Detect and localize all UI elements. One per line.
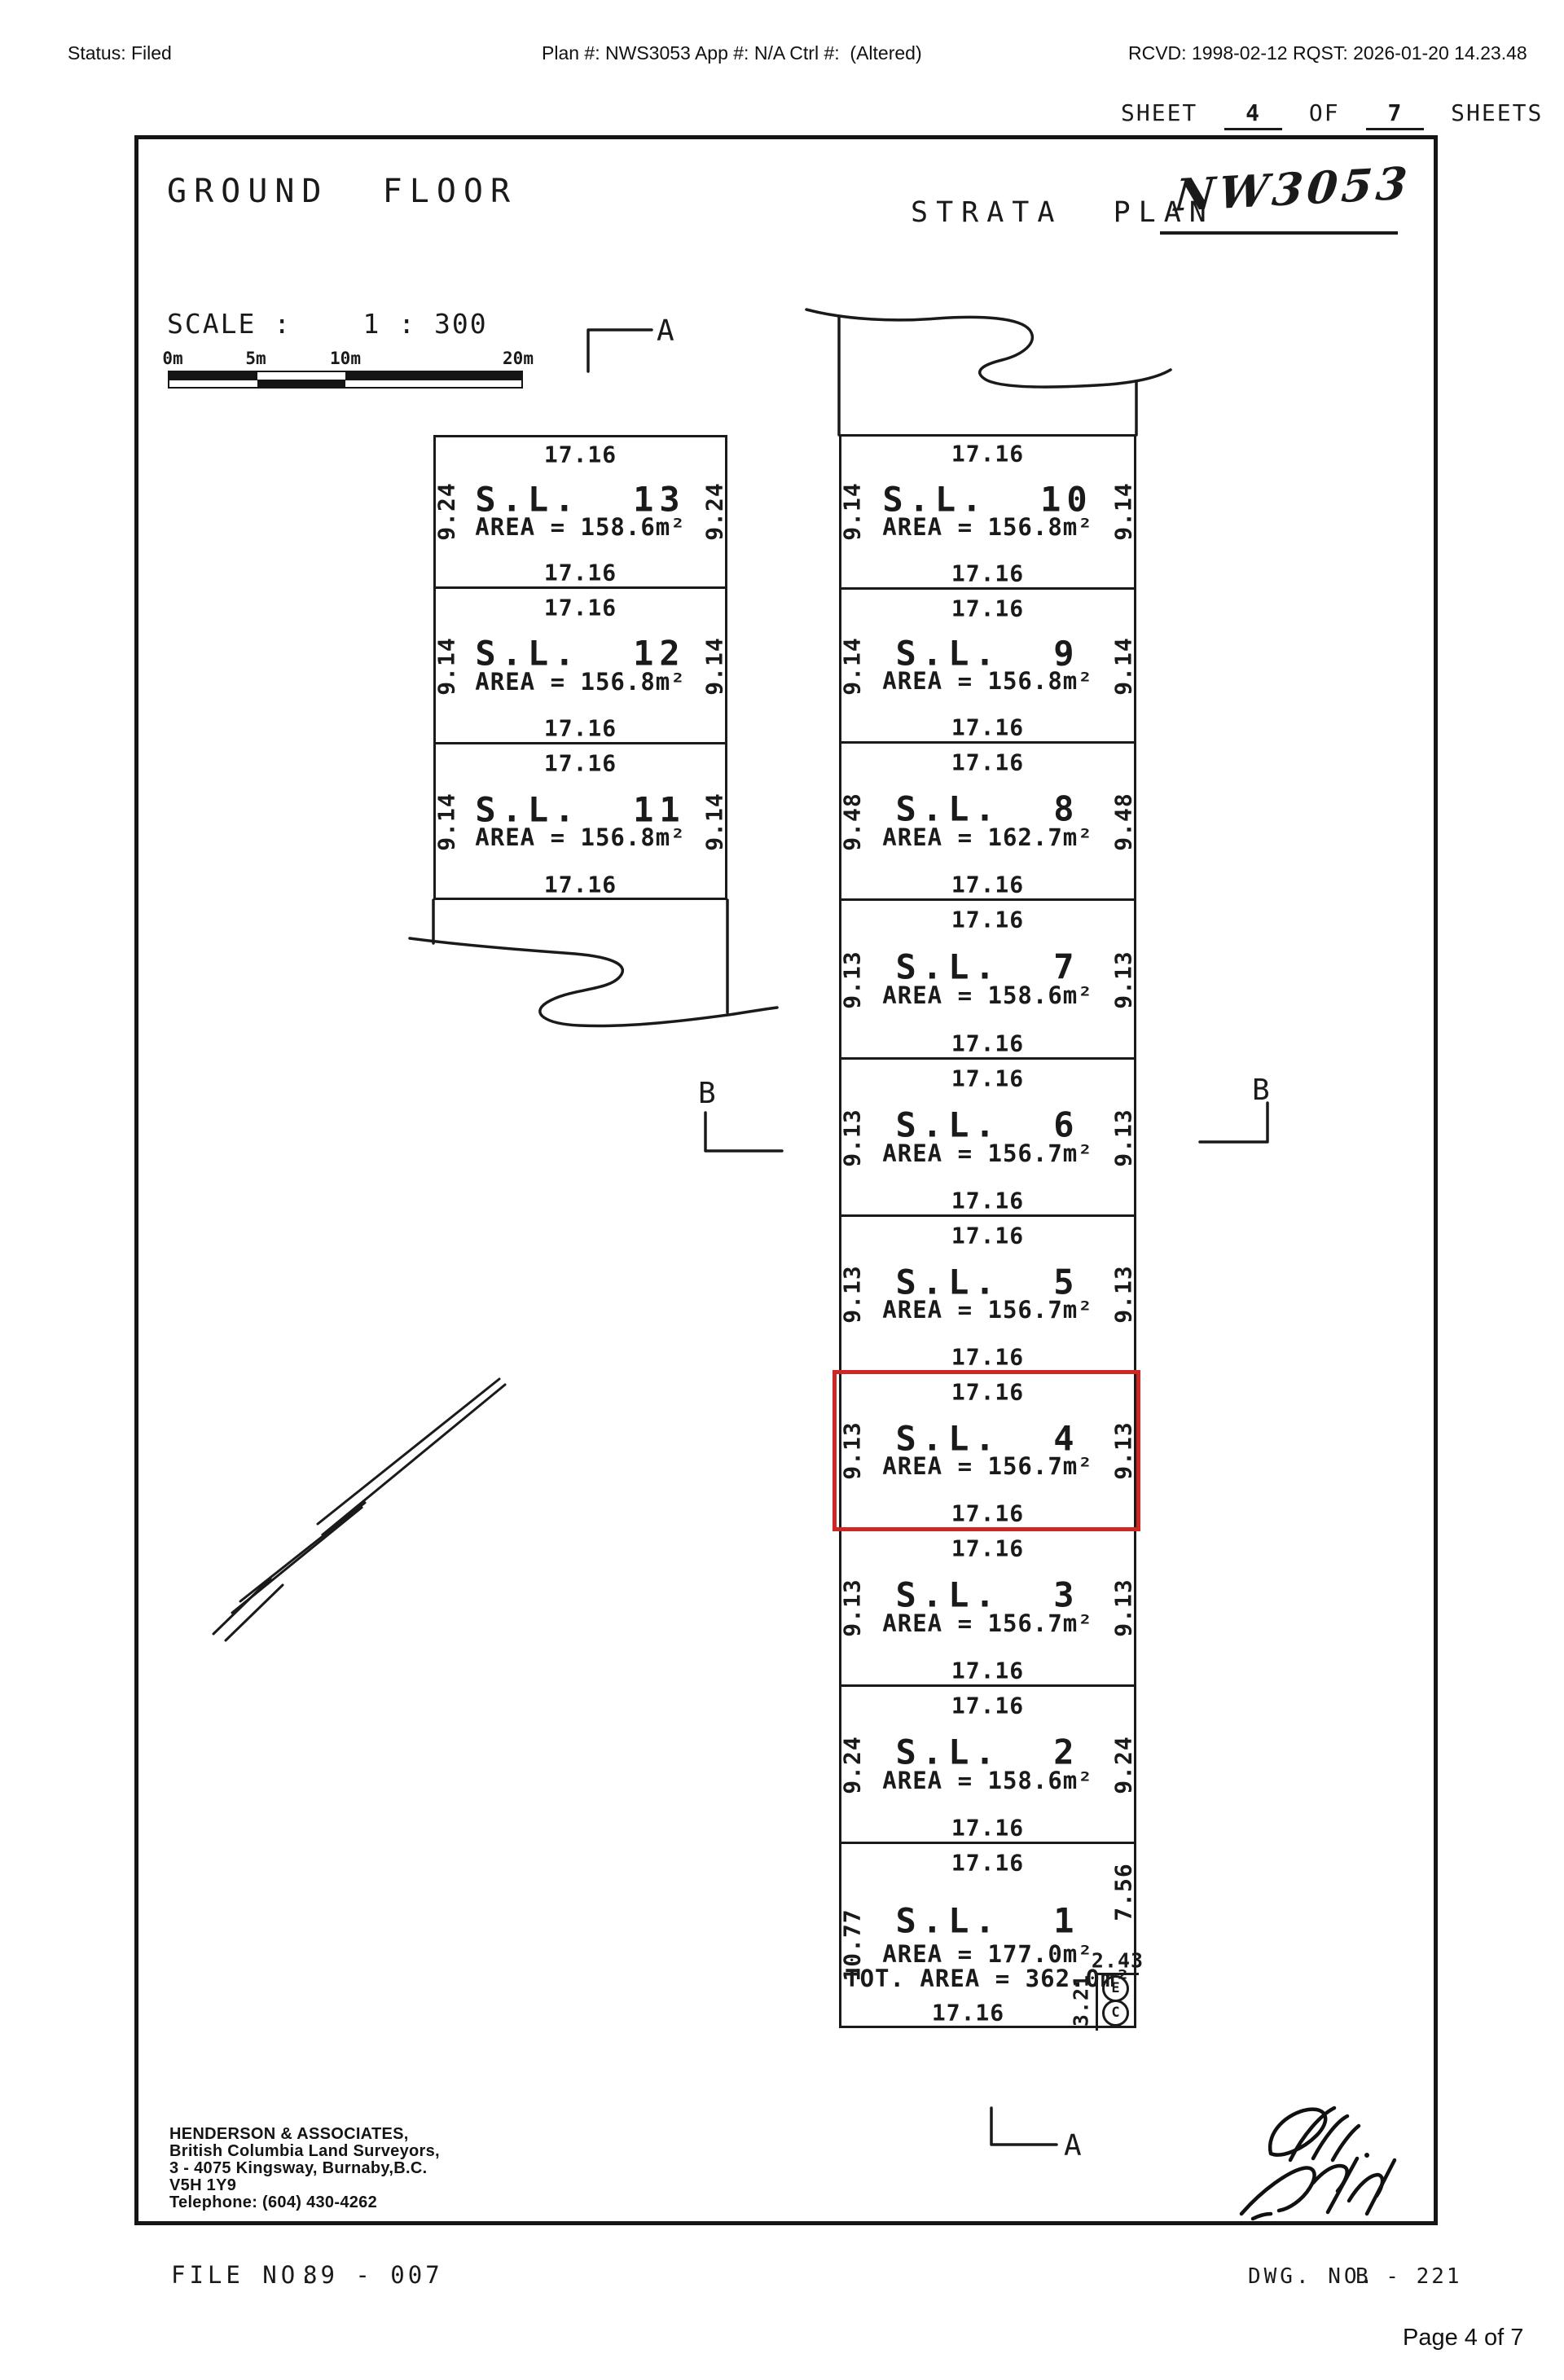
lot-sl-9-dim-left: 9.14 [839,637,866,695]
lot-sl-9-dim-right: 9.14 [1110,637,1137,695]
section-marker-a-bottom: A [1064,2129,1082,2163]
lot-sl-5-dim-right: 9.13 [1110,1265,1137,1323]
lot-sl-13-dim-right: 9.24 [701,482,728,540]
lot-sl-10-area: AREA = 156.8m² [882,513,1092,541]
surveyor-firm-name: HENDERSON & ASSOCIATES, [169,2126,440,2143]
sheet-counter: SHEET 4 OF 7 SHEETS [1121,99,1554,130]
lot-sl-2-dim-bottom: 17.16 [951,1815,1024,1842]
scale-tick-20m: 20m [503,349,534,368]
floor-title: GROUND FLOOR [167,173,517,210]
lot-sl-2-dim-top: 17.16 [951,1693,1024,1719]
lot-sl-8-dim-left: 9.48 [839,793,866,850]
lot-sl-1-dim-right: 7.56 [1110,1863,1137,1921]
file-number-label: FILE NO. [171,2261,318,2289]
document-received-info: RCVD: 1998-02-12 RQST: 2026-01-20 14.23.… [1128,42,1527,64]
lot-sl-3-dim-right: 9.13 [1110,1579,1137,1636]
lot-sl-8-dim-right: 9.48 [1110,793,1137,850]
badge-circled-c: C [1102,2000,1129,2027]
lot-column-left-divider [433,742,727,744]
lot-sl-3-dim-left: 9.13 [839,1579,866,1636]
lot-sl-6-dim-left: 9.13 [839,1109,866,1166]
surveyor-firm-block: HENDERSON & ASSOCIATES, British Columbia… [169,2126,440,2211]
lot-sl-8-dim-bottom: 17.16 [951,872,1024,898]
lot-sl-12-area: AREA = 156.8m² [475,668,685,696]
lot-sl-12-dim-left: 9.14 [433,637,460,695]
lot-sl-3-dim-bottom: 17.16 [951,1658,1024,1684]
drawing-number-value: B - 221 [1355,2264,1462,2289]
lot-sl-5-dim-top: 17.16 [951,1223,1024,1249]
surveyor-firm-role: British Columbia Land Surveyors, [169,2143,440,2160]
badge-circled-e: E [1102,1975,1129,2002]
lot-sl-3-area: AREA = 156.7m² [882,1609,1092,1637]
lot-column-right-divider [839,587,1136,590]
lot-sl-1-notch-dim-side: 3.21 [1070,1974,1093,2027]
lot-column-left-divider [433,586,727,589]
lot-sl-12-dim-right: 9.14 [701,637,728,695]
lot-sl-10-dim-bottom: 17.16 [951,560,1024,587]
lot-sl-11-dim-right: 9.14 [701,793,728,850]
lot-column-right-divider [839,898,1136,901]
lot-column-right-divider [839,1214,1136,1217]
scale-bar [168,371,523,389]
lot-sl-7-dim-right: 9.13 [1110,951,1137,1008]
lot-sl-1-dim-left: 10.77 [839,1908,866,1981]
lot-sl-7-dim-left: 9.13 [839,951,866,1008]
lot-sl-9-area: AREA = 156.8m² [882,667,1092,695]
scale-tick-10m: 10m [330,349,361,368]
strata-plan-label: STRATA PLAN [911,196,1215,229]
lot-sl-1-dim-top: 17.16 [951,1850,1024,1877]
scale-label: SCALE : 1 : 300 [167,308,488,340]
document-plan-info: Plan #: NWS3053 App #: N/A Ctrl #: (Alte… [542,42,922,64]
lot-sl-9-dim-top: 17.16 [951,595,1024,622]
lot-sl-7-dim-top: 17.16 [951,907,1024,933]
lot-sl-4-highlight-box [833,1370,1140,1531]
lot-sl-1-dim-bottom: 17.16 [932,2000,1004,2027]
scale-tick-5m: 5m [245,349,266,368]
sheets-label: SHEETS [1451,99,1543,126]
lot-sl-6-dim-top: 17.16 [951,1065,1024,1092]
lot-sl-8-dim-top: 17.16 [951,749,1024,776]
lot-sl-13-area: AREA = 158.6m² [475,513,685,541]
lot-column-right-divider [839,741,1136,744]
surveyor-firm-address: 3 - 4075 Kingsway, Burnaby,B.C. [169,2160,440,2177]
lot-sl-2-dim-left: 9.24 [839,1736,866,1794]
section-marker-b-left: B [698,1077,716,1110]
lot-sl-13-dim-top: 17.16 [544,441,617,468]
lot-sl-7-area: AREA = 158.6m² [882,981,1092,1009]
lot-sl-12-dim-bottom: 17.16 [544,715,617,742]
surveyor-firm-phone: Telephone: (604) 430-4262 [169,2194,440,2211]
lot-sl-5-area: AREA = 156.7m² [882,1296,1092,1324]
lot-sl-3-dim-top: 17.16 [951,1535,1024,1562]
lot-sl-5-dim-left: 9.13 [839,1265,866,1323]
lot-sl-10-dim-left: 9.14 [839,482,866,540]
lot-sl-2-area: AREA = 158.6m² [882,1767,1092,1794]
page-indicator: Page 4 of 7 [1403,2325,1523,2351]
lot-sl-6-dim-bottom: 17.16 [951,1188,1024,1214]
surveyor-firm-postal: V5H 1Y9 [169,2177,440,2194]
section-marker-b-right: B [1252,1074,1270,1107]
lot-sl-12-dim-top: 17.16 [544,595,617,621]
lot-sl-7-dim-bottom: 17.16 [951,1030,1024,1057]
lot-sl-6-dim-right: 9.13 [1110,1109,1137,1166]
lot-sl-10-dim-right: 9.14 [1110,482,1137,540]
lot-column-right-divider [839,1057,1136,1060]
sheet-number: 4 [1224,99,1282,130]
lot-column-right-divider [839,1842,1136,1844]
document-status: Status: Filed [68,42,172,64]
strata-plan-underline [1160,231,1398,235]
lot-sl-11-dim-bottom: 17.16 [544,872,617,898]
section-marker-a-top: A [657,314,674,348]
lot-sl-1-notch-dim-top: 2.43 [1092,1949,1144,1973]
scale-tick-0m: 0m [162,349,182,368]
lot-column-right-divider [839,1684,1136,1687]
lot-sl-9-dim-bottom: 17.16 [951,714,1024,741]
lot-sl-10-dim-top: 17.16 [951,441,1024,468]
lot-sl-8-area: AREA = 162.7m² [882,823,1092,851]
sheet-total: 7 [1366,99,1424,130]
lot-sl-11-area: AREA = 156.8m² [475,823,685,851]
lot-sl-13-dim-left: 9.24 [433,482,460,540]
strata-plan-document-page: Status: Filed Plan #: NWS3053 App #: N/A… [0,0,1564,2380]
lot-sl-5-dim-bottom: 17.16 [951,1344,1024,1371]
lot-sl-11-dim-left: 9.14 [433,793,460,850]
lot-sl-1-label: S.L. 1 [895,1901,1079,1941]
drawing-border [134,135,1438,2225]
file-number-value: 89 - 007 [303,2261,443,2289]
lot-sl-13-dim-bottom: 17.16 [544,560,617,586]
sheet-label: SHEET [1121,99,1197,126]
sheet-of-label: OF [1309,99,1340,126]
lot-sl-2-dim-right: 9.24 [1110,1736,1137,1794]
lot-sl-11-dim-top: 17.16 [544,750,617,777]
lot-sl-6-area: AREA = 156.7m² [882,1140,1092,1167]
